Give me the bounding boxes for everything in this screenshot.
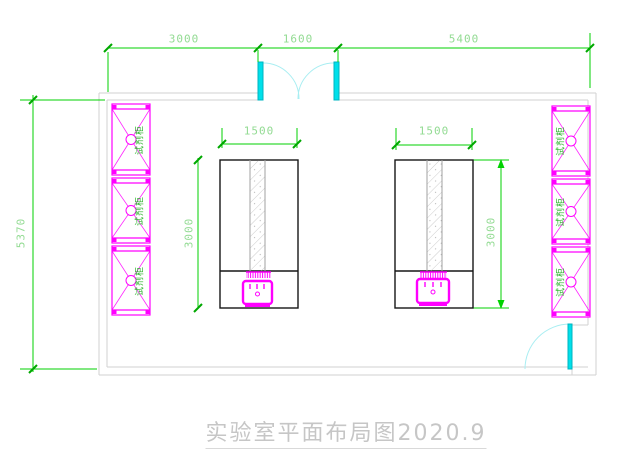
door-leaf-left [258,62,263,100]
reagent-cabinet-unit [112,178,150,243]
dimension-lines [20,33,594,373]
reagent-cabinet-unit [552,247,590,317]
reagent-cabinet-unit [552,179,590,244]
door-leaf [568,324,572,369]
floorplan-svg [0,0,619,469]
reagent-cabinet-unit [552,106,590,176]
sink-fixture [417,272,449,306]
sink-fixture [243,272,272,307]
reagent-cabinet-unit [112,104,150,175]
reagent-cabinet-unit [112,246,150,315]
duct-hatch [427,161,442,271]
cad-viewport[interactable]: 3000 1600 5400 5370 1500 3000 1500 3000 … [0,0,619,469]
door-leaf-right [334,62,339,100]
fume-bench-right [395,160,473,308]
single-door [525,324,572,369]
reagent-cabinets [112,104,590,317]
double-door [258,62,339,100]
duct-hatch [250,161,265,271]
room-walls [99,93,596,375]
fume-bench-left [220,160,298,308]
